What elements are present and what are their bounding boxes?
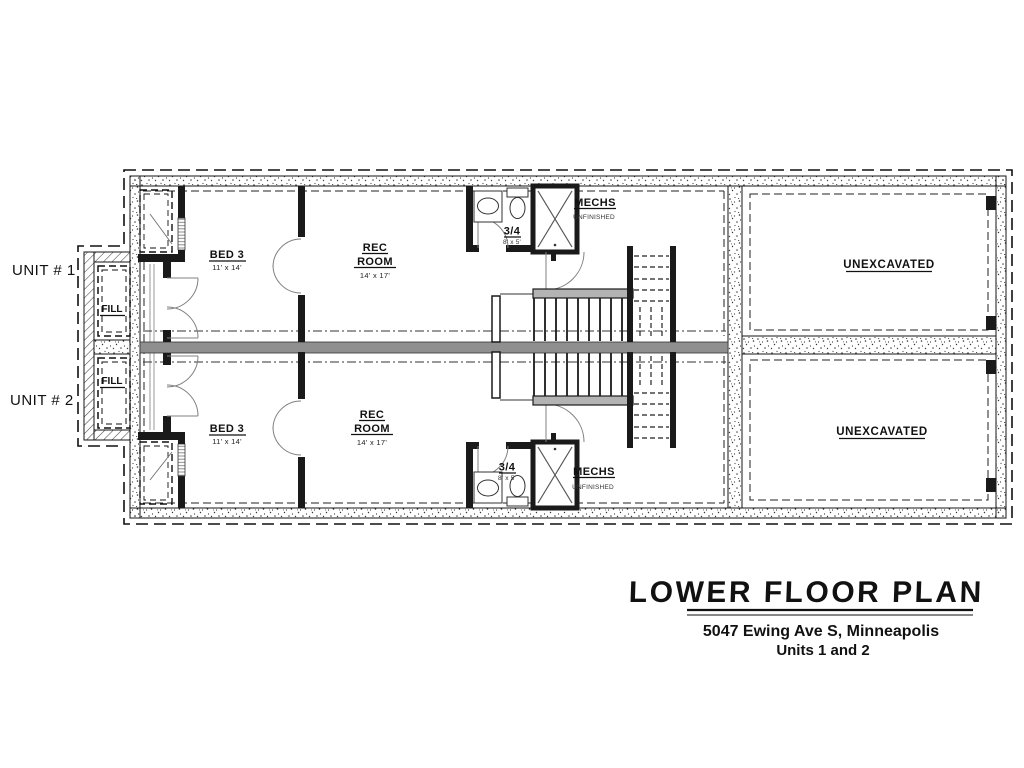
unit2-label: UNIT # 2: [10, 392, 74, 409]
fill-well-2-outer: [98, 358, 130, 428]
stair2-railing: [533, 396, 633, 405]
pilaster-u1-top: [986, 196, 996, 210]
pilaster-u2-bottom: [986, 478, 996, 492]
bed1-door-swing-a: [273, 239, 301, 267]
wall-bed-rec-u1-lower: [298, 295, 305, 342]
bed3-unit2-label: BED 3: [210, 423, 244, 435]
fill-well-2-inner: [102, 362, 126, 424]
rec-unit2-line2: ROOM: [354, 423, 390, 435]
bath-unit2-size: 8' x 5': [498, 475, 516, 482]
window-well-unit2: [138, 432, 185, 508]
entry2-swing-a: [167, 356, 198, 387]
bath1-left-wall: [466, 186, 473, 252]
bath2-top-wall-a: [466, 442, 479, 449]
bed1-door-swing-b: [273, 265, 301, 293]
left-bumpout: [84, 252, 130, 440]
bumpout-bottom-wall: [94, 430, 130, 440]
stair1-shaft-wall-right: [670, 246, 676, 342]
stair1-end-post: [492, 296, 500, 342]
unexcavated-unit2-label: UNEXCAVATED: [836, 426, 928, 438]
basement-unexcavated-divider-wall: [728, 186, 742, 508]
mech2-jamb: [551, 433, 556, 442]
mech1-jamb: [551, 252, 556, 261]
unexcavated-unit1-label: UNEXCAVATED: [843, 259, 935, 271]
pilaster-u1-bottom: [986, 316, 996, 330]
bed3-unit2-size: 11' x 14': [212, 437, 242, 446]
entry1-swing-b: [167, 307, 198, 338]
stairs-unit2: [492, 352, 676, 448]
bumpout-left-wall: [84, 252, 94, 440]
title-block: LOWER FLOOR PLAN 5047 Ewing Ave S, Minne…: [628, 576, 984, 659]
fill-well-1-inner: [102, 270, 126, 332]
toilet-tank-unit1: [507, 188, 528, 197]
right-exterior-wall: [996, 176, 1006, 518]
stair2-treads: [534, 353, 622, 396]
wall-bed-rec-u2-lower: [298, 457, 305, 508]
rec-unit1-size: 14' x 17': [360, 271, 390, 280]
entry-doors-unit2: [163, 353, 198, 432]
party-wall: [140, 342, 728, 353]
bath-unit1-size: 8' x 5': [503, 239, 521, 246]
bed-rec-partition-unit2: [273, 352, 305, 508]
mech-unit1-status: UNFINISHED: [573, 214, 615, 221]
stair1-shaft-wall-left: [627, 246, 633, 342]
bath2-left-wall: [466, 442, 473, 508]
pilaster-u2-top: [986, 360, 996, 374]
unexcavated-party-wall: [742, 336, 996, 354]
bath1-bottom-wall-a: [466, 245, 479, 252]
entry2-jamb-top: [163, 353, 171, 365]
toilet-tank-unit2: [507, 497, 528, 506]
well2-top-wall: [138, 432, 185, 440]
left-exterior-wall: [130, 176, 140, 518]
floor-plan-page: UNIT # 1 UNIT # 2 FILL FILL BED 3 11' x …: [0, 0, 1024, 768]
egress-window-unit1: [178, 218, 185, 250]
fill1-label: FILL: [101, 304, 122, 315]
stair1-treads: [534, 298, 622, 341]
toilet-bowl-unit1: [510, 198, 525, 219]
rec-unit2-size: 14' x 17': [357, 438, 387, 447]
rec-unit2-line1: REC: [360, 409, 384, 421]
entry2-jamb-bottom: [163, 416, 171, 432]
sheet-title: LOWER FLOOR PLAN: [628, 576, 984, 609]
bumpout-party-strip: [94, 340, 130, 354]
stair1-railing: [533, 289, 633, 298]
floor-plan-drawing: UNIT # 1 UNIT # 2 FILL FILL BED 3 11' x …: [0, 0, 1024, 768]
stairs-unit1: [492, 246, 676, 342]
bathroom-unit1: [466, 186, 584, 290]
drain-unit2: [554, 448, 557, 451]
stair1-upper-flight-dashed: [634, 256, 669, 338]
wall-bed-rec-u1-upper: [298, 186, 305, 237]
bath-unit2-label: 3/4: [499, 462, 516, 474]
bed3-unit1-label: BED 3: [210, 249, 244, 261]
bed3-unit1-size: 11' x 14': [212, 263, 242, 272]
fill2-label: FILL: [101, 376, 122, 387]
bathroom-unit2: [466, 404, 584, 508]
rec-unit1-line1: REC: [363, 242, 387, 254]
well2-wall-lower: [178, 476, 185, 508]
window-well-unit1: [138, 186, 185, 262]
entry1-swing-a: [167, 278, 198, 309]
mech-unit2-label: MECHS: [573, 466, 615, 478]
units-line: Units 1 and 2: [776, 642, 869, 659]
entry1-jamb-top: [163, 262, 171, 278]
stair2-end-post: [492, 352, 500, 398]
well1-inner-dashed: [144, 194, 168, 248]
bed2-door-swing-b: [273, 427, 301, 455]
wall-bed-rec-u2-upper: [298, 352, 305, 399]
stair2-upper-flight-dashed: [634, 356, 669, 438]
bed2-door-swing-a: [273, 401, 301, 429]
fill-well-1-outer: [98, 266, 130, 336]
mech-unit1-label: MECHS: [574, 197, 616, 209]
sink-unit1: [474, 191, 502, 222]
rec-unit1-line2: ROOM: [357, 256, 393, 268]
bumpout-top-wall: [94, 252, 130, 262]
stair2-shaft-wall-right: [670, 352, 676, 448]
well2-leader-line: [150, 452, 172, 480]
drain-unit1: [554, 244, 557, 247]
entry1-jamb-bottom: [163, 330, 171, 342]
stair2-shaft-wall-left: [627, 352, 633, 448]
mech-unit2-status: UNFINISHED: [572, 484, 614, 491]
entry-doors-unit1: [163, 262, 198, 342]
well1-leader-line: [150, 214, 172, 244]
address-line: 5047 Ewing Ave S, Minneapolis: [703, 623, 939, 640]
well1-outer-dashed: [140, 190, 172, 252]
entry2-swing-b: [167, 385, 198, 416]
bath-unit1-label: 3/4: [504, 226, 521, 238]
unit1-label: UNIT # 1: [12, 262, 76, 279]
egress-window-unit2: [178, 444, 185, 476]
well1-bottom-wall: [138, 254, 185, 262]
well1-wall-upper: [178, 186, 185, 218]
bed-rec-partition-unit1: [273, 186, 305, 342]
